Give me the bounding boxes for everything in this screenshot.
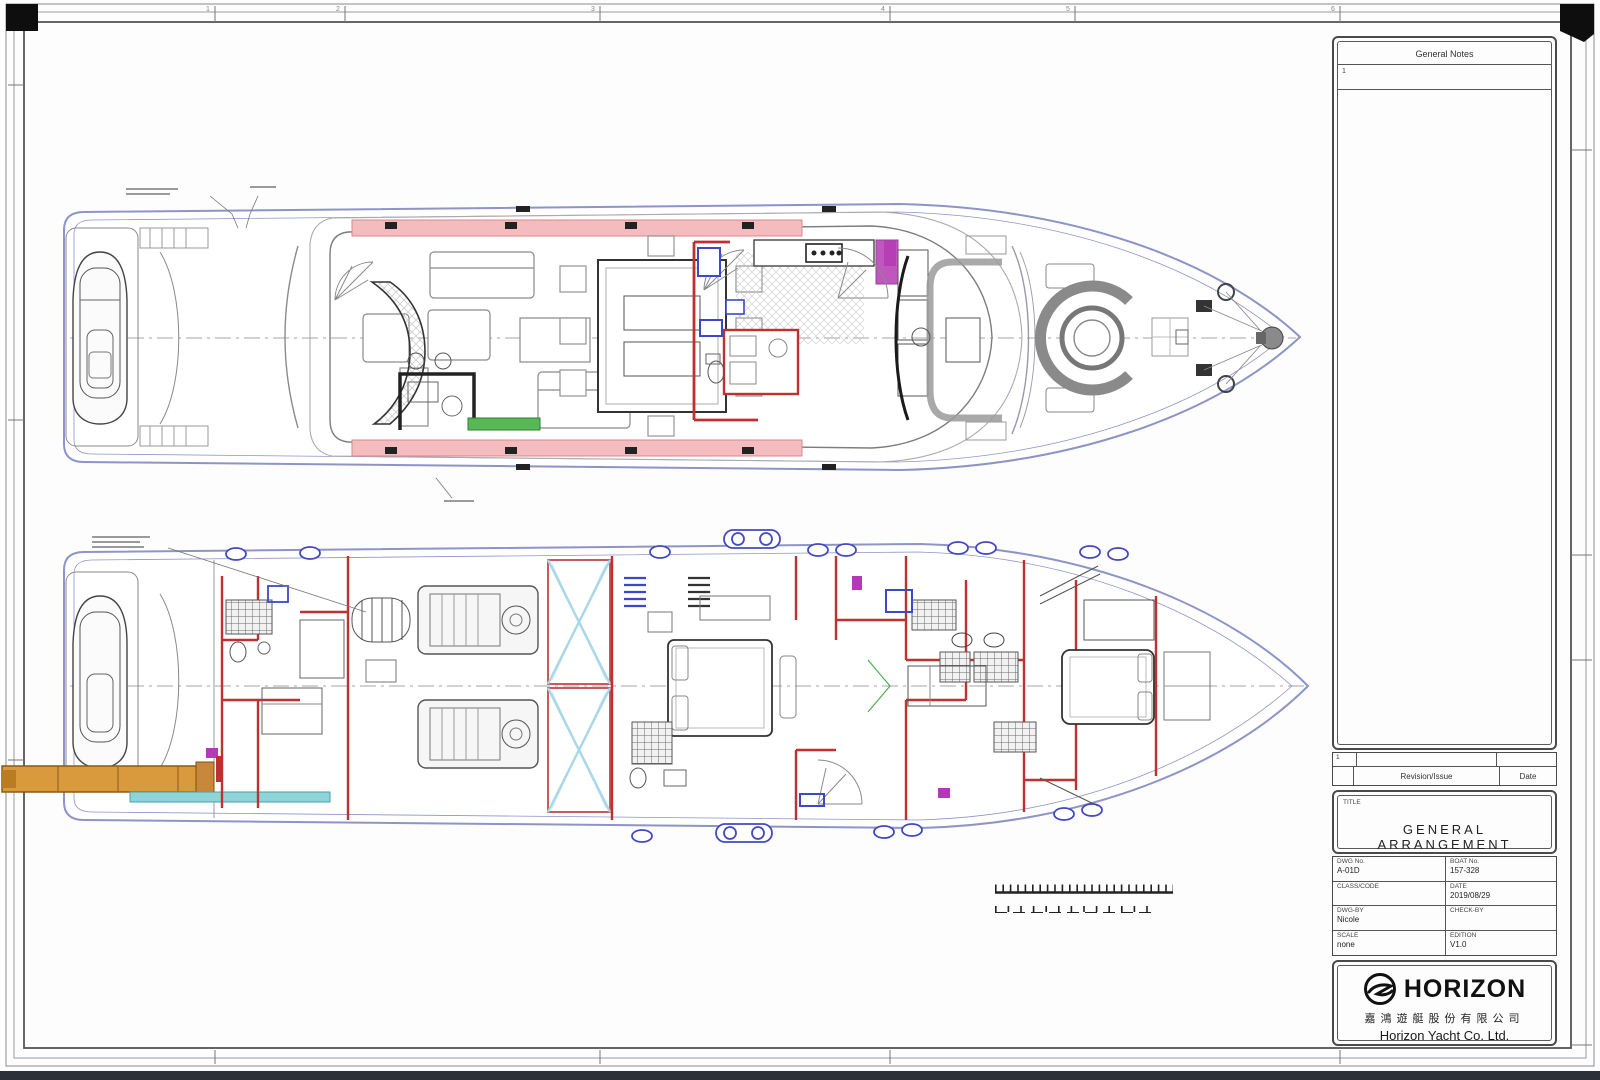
general-notes-panel: General Notes 1 <box>1332 36 1557 750</box>
field-edition: EDITION V1.0 <box>1446 931 1556 956</box>
vip-bed <box>1062 650 1154 724</box>
general-notes-row: 1 <box>1338 65 1551 90</box>
brand-name: HORIZON <box>1404 975 1526 1004</box>
field-dwg-no: DWG No. A-01D <box>1333 857 1446 882</box>
field-date: DATE 2019/08/29 <box>1446 882 1556 907</box>
company-name-chinese: 嘉鴻遊艇股份有限公司 <box>1338 1010 1551 1026</box>
master-bed <box>668 640 772 736</box>
drawing-sheet: 1 2 3 4 5 6 <box>0 0 1600 1080</box>
svg-text:5: 5 <box>1066 6 1070 13</box>
drawing-title: GENERAL ARRANGEMENT <box>1338 822 1551 852</box>
revision-date-header: Date <box>1500 767 1556 785</box>
corner-mark-top-right <box>1560 4 1594 42</box>
field-check-by: CHECK-BY <box>1446 906 1556 931</box>
side-deck-starboard <box>352 440 802 456</box>
title-block: TITLE GENERAL ARRANGEMENT <box>1332 790 1557 854</box>
svg-text:4: 4 <box>881 6 885 13</box>
lower-deck-plan <box>2 530 1308 842</box>
company-logo-block: HORIZON 嘉鴻遊艇股份有限公司 Horizon Yacht Co. Ltd… <box>1332 960 1557 1046</box>
svg-text:6: 6 <box>1331 6 1335 13</box>
svg-text:1: 1 <box>206 6 210 13</box>
foredeck-table <box>1062 308 1122 368</box>
platform-strip-teal <box>130 792 330 802</box>
svg-text:2: 2 <box>336 6 340 13</box>
titleblock-fields: DWG No. A-01D BOAT No. 157-328 CLASS/COD… <box>1332 856 1557 956</box>
revision-row-number: 1 <box>1333 753 1357 766</box>
field-dwg-by: DWG-BY Nicole <box>1333 906 1446 931</box>
sheet-bottom-edge <box>0 1071 1600 1080</box>
revision-table: 1 Revision/Issue Date <box>1332 752 1557 786</box>
scale-bar <box>995 888 1173 913</box>
sideboard-green <box>468 418 540 430</box>
title-label: TITLE <box>1343 799 1361 806</box>
passerelle-gangway <box>2 766 212 792</box>
side-deck-port <box>352 220 802 236</box>
corner-mark-top-left <box>6 4 38 31</box>
field-scale: SCALE none <box>1333 931 1446 956</box>
general-notes-header: General Notes <box>1338 42 1551 64</box>
main-deck-plan <box>64 186 1300 502</box>
svg-text:3: 3 <box>591 6 595 13</box>
field-class-code: CLASS/CODE <box>1333 882 1446 907</box>
company-name-english: Horizon Yacht Co. Ltd. <box>1338 1028 1551 1043</box>
field-boat-no: BOAT No. 157-328 <box>1446 857 1556 882</box>
revision-issue-header: Revision/Issue <box>1354 767 1500 785</box>
horizon-logo-icon <box>1363 972 1397 1006</box>
